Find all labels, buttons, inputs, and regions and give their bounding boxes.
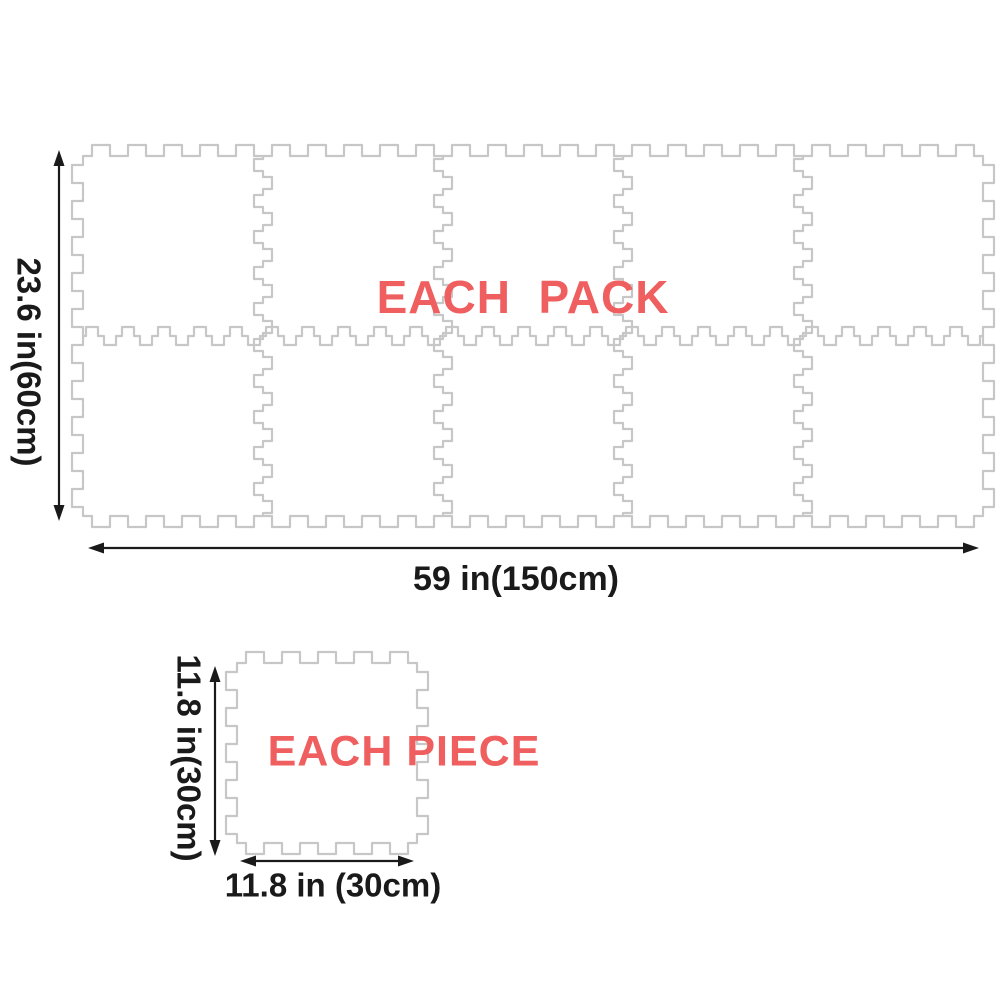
pack-height-dimension-label: 23.6 in(60cm) — [13, 257, 46, 466]
piece-height-dimension-label: 11.8 in(30cm) — [173, 654, 206, 861]
diagram-canvas — [0, 0, 1000, 1000]
piece-height-arrow — [210, 666, 221, 856]
foam-mat-size-diagram: EACH PACK 23.6 in(60cm) 59 in(150cm) EAC… — [0, 0, 1000, 1000]
pack-width-arrow — [88, 543, 979, 554]
each-pack-label: EACH PACK — [377, 274, 670, 320]
pack-width-dimension-label: 59 in(150cm) — [413, 562, 619, 596]
pack-mat-grid — [72, 145, 994, 527]
piece-width-arrow — [240, 856, 414, 867]
each-piece-label: EACH PIECE — [268, 731, 541, 774]
pack-height-arrow — [54, 150, 65, 521]
piece-width-dimension-label: 11.8 in (30cm) — [225, 869, 441, 902]
